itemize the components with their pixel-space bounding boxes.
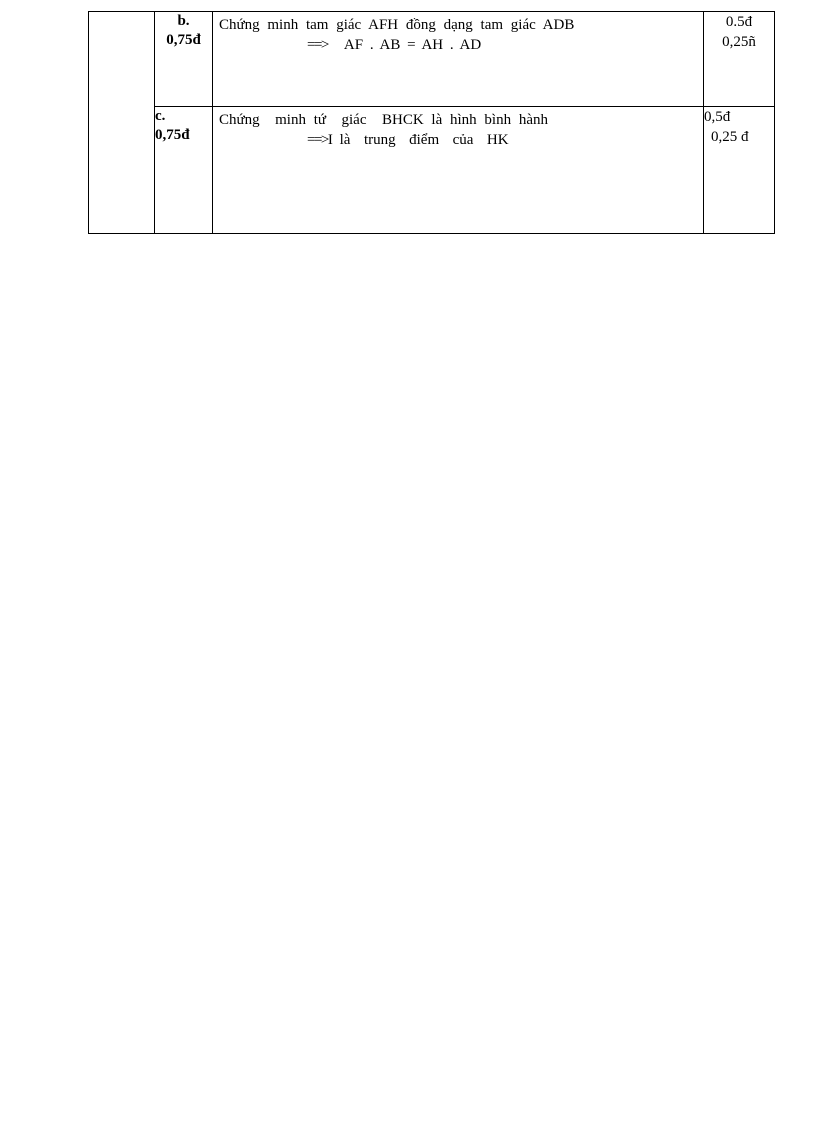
proof-statement: Chứng minh tứ giác BHCK là hình bình hàn… xyxy=(213,107,703,130)
table-row-b: b. 0,75đ Chứng minh tam giác AFH đồng dạ… xyxy=(89,12,775,107)
points-cell-c: 0,5đ 0,25 đ xyxy=(704,107,775,234)
derivation-text: I là trung điểm của HK xyxy=(328,132,509,148)
item-points: 0,75đ xyxy=(155,31,212,50)
table-row-c: c. 0,75đ Chứng minh tứ giác BHCK là hình… xyxy=(89,107,775,234)
item-letter: b. xyxy=(155,12,212,31)
document-page: b. 0,75đ Chứng minh tam giác AFH đồng dạ… xyxy=(0,0,816,1123)
points-value: 0,25ñ xyxy=(704,32,774,52)
implies-arrow: ==> xyxy=(307,37,328,53)
grading-rubric-table: b. 0,75đ Chứng minh tam giác AFH đồng dạ… xyxy=(88,11,775,234)
points-value: 0.5đ xyxy=(704,12,774,32)
points-value: 0,5đ xyxy=(704,107,774,127)
proof-statement: Chứng minh tam giác AFH đồng dạng tam gi… xyxy=(213,12,703,35)
derivation-text: AF . AB = AH . AD xyxy=(328,37,481,53)
item-points: 0,75đ xyxy=(155,126,212,145)
proof-derivation: ==>AF . AB = AH . AD xyxy=(213,35,703,55)
points-cell-b: 0.5đ 0,25ñ xyxy=(704,12,775,107)
item-label-cell-c: c. 0,75đ xyxy=(155,107,213,234)
item-label-cell-b: b. 0,75đ xyxy=(155,12,213,107)
proof-derivation: ==>I là trung điểm của HK xyxy=(213,130,703,150)
item-letter: c. xyxy=(155,107,212,126)
answer-cell-b: Chứng minh tam giác AFH đồng dạng tam gi… xyxy=(213,12,704,107)
answer-cell-c: Chứng minh tứ giác BHCK là hình bình hàn… xyxy=(213,107,704,234)
empty-cell xyxy=(89,12,155,234)
implies-arrow: ==> xyxy=(307,132,328,148)
points-value: 0,25 đ xyxy=(704,127,774,147)
